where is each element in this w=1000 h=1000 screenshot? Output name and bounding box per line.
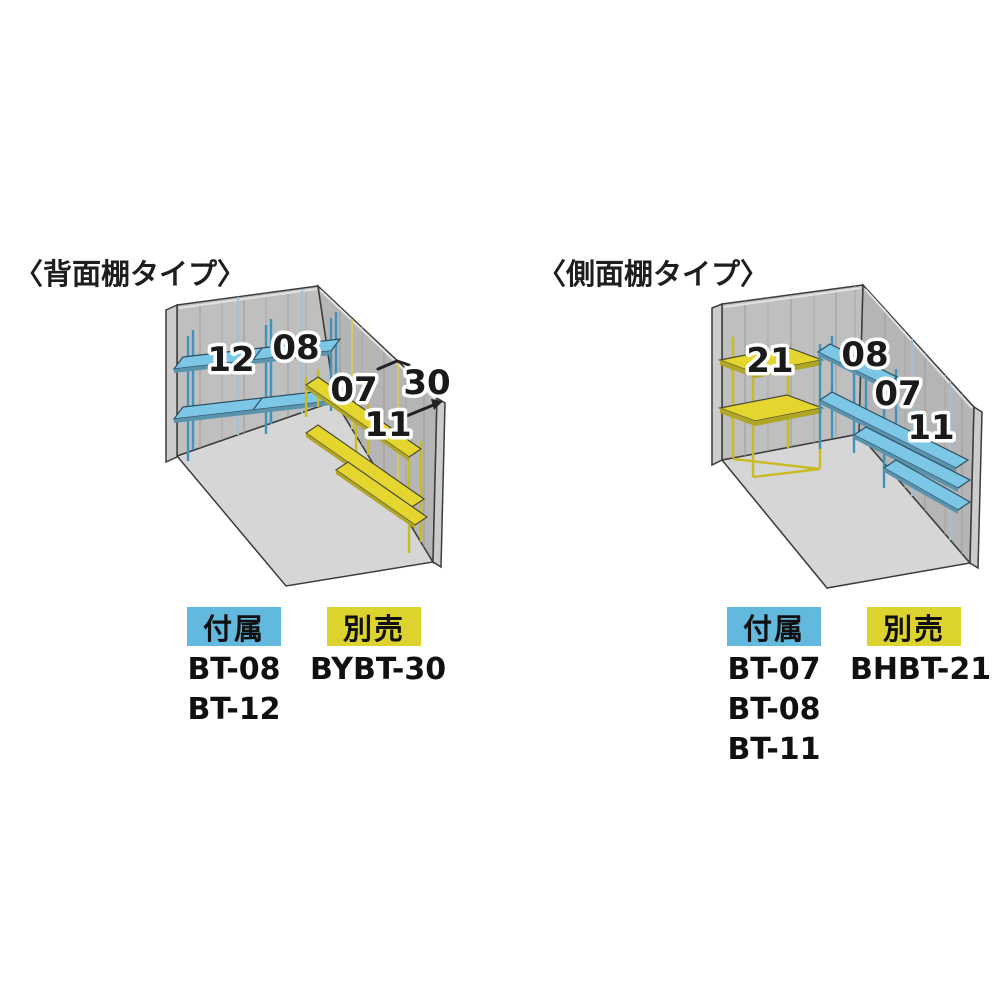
shelf-label-08: 08: [841, 335, 888, 375]
depth-label-30: 30: [403, 363, 450, 403]
included-model-list: BT-08 BT-12: [187, 650, 281, 730]
left-diagram-title: 〈背面棚タイプ〉: [14, 251, 246, 293]
shelf-label-08: 08: [272, 328, 319, 368]
model-number: BT-08: [187, 650, 281, 690]
side-shelf-type-diagram: 21 08 07 11: [712, 285, 982, 588]
shelf-label-11: 11: [907, 408, 954, 448]
separate-model-list: BHBT-21: [850, 650, 980, 690]
back-shelf-type-diagram: 12 08 07 11 30: [166, 286, 451, 586]
included-model-list: BT-07 BT-08 BT-11: [727, 650, 821, 770]
sold-separately-badge: 別売: [867, 607, 961, 646]
shelf-label-07: 07: [330, 370, 377, 410]
model-number: BT-12: [187, 690, 281, 730]
shelf-label-12: 12: [207, 340, 254, 380]
model-number: BT-08: [727, 690, 821, 730]
included-badge: 付属: [727, 607, 821, 646]
shelf-label-11: 11: [364, 405, 411, 445]
left-wall-strip: [712, 304, 722, 465]
model-number: BHBT-21: [850, 650, 980, 690]
catalog-shelf-diagram-page: 12 08 07 11 30: [0, 0, 1000, 1000]
included-badge: 付属: [187, 607, 281, 646]
model-number: BT-11: [727, 730, 821, 770]
shelf-label-21: 21: [746, 341, 793, 381]
right-diagram-title: 〈側面棚タイプ〉: [537, 251, 769, 293]
separate-model-list: BYBT-30: [310, 650, 440, 690]
left-wall-strip: [166, 305, 177, 462]
model-number: BYBT-30: [310, 650, 440, 690]
sold-separately-badge: 別売: [327, 607, 421, 646]
shelf-layout-illustrations: 12 08 07 11 30: [0, 0, 1000, 1000]
model-number: BT-07: [727, 650, 821, 690]
